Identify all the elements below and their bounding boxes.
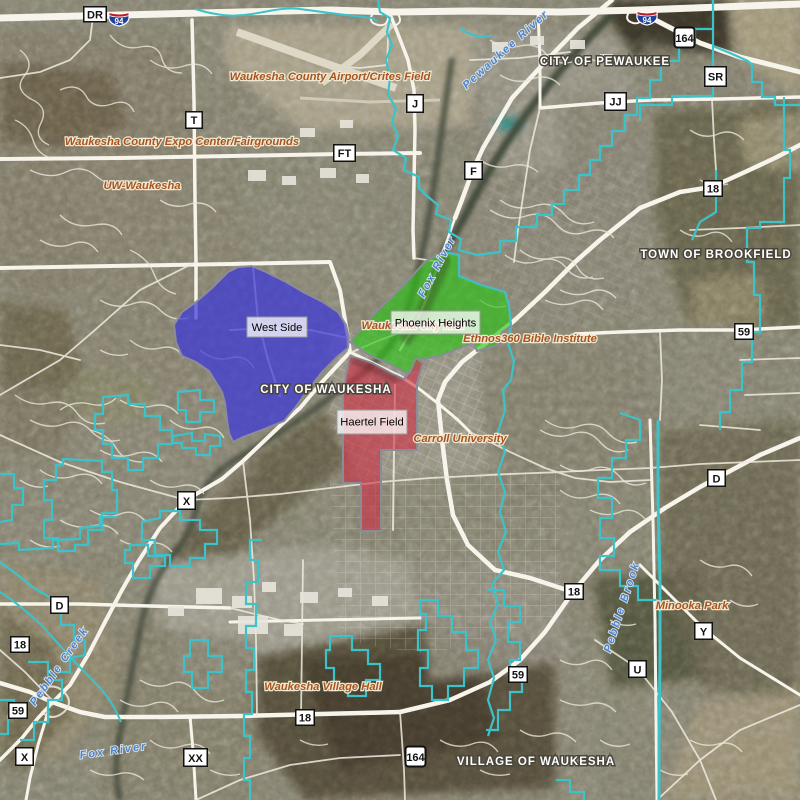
svg-text:18: 18 — [568, 587, 580, 599]
svg-text:59: 59 — [738, 327, 750, 339]
svg-text:Waukesha County Expo Center/Fa: Waukesha County Expo Center/Fairgrounds — [65, 136, 299, 148]
svg-text:Waukesha Village Hall: Waukesha Village Hall — [264, 681, 382, 693]
svg-text:Phoenix Heights: Phoenix Heights — [395, 318, 477, 330]
svg-text:18: 18 — [707, 184, 719, 196]
svg-text:18: 18 — [299, 713, 311, 725]
svg-text:DR: DR — [87, 9, 103, 21]
svg-text:59: 59 — [12, 706, 24, 718]
svg-text:Minooka Park: Minooka Park — [656, 600, 730, 612]
svg-text:Waukesha County Airport/Crites: Waukesha County Airport/Crites Field — [230, 71, 432, 83]
svg-text:TOWN OF BROOKFIELD: TOWN OF BROOKFIELD — [640, 249, 791, 261]
svg-text:T: T — [191, 115, 198, 127]
svg-text:18: 18 — [14, 640, 26, 652]
svg-text:Y: Y — [700, 627, 708, 639]
svg-text:F: F — [470, 166, 477, 178]
svg-text:West Side: West Side — [252, 322, 303, 334]
svg-text:94: 94 — [115, 17, 124, 26]
svg-text:U: U — [634, 665, 642, 677]
svg-text:164: 164 — [406, 752, 425, 764]
svg-text:JJ: JJ — [609, 97, 621, 109]
svg-text:X: X — [183, 496, 191, 508]
svg-text:SR: SR — [708, 72, 723, 84]
svg-text:X: X — [21, 752, 29, 764]
svg-text:FT: FT — [338, 148, 352, 160]
svg-text:VILLAGE OF WAUKESHA: VILLAGE OF WAUKESHA — [457, 756, 615, 768]
svg-text:D: D — [56, 601, 64, 613]
svg-text:XX: XX — [188, 753, 203, 765]
svg-text:D: D — [713, 474, 721, 486]
svg-text:J: J — [412, 99, 418, 111]
svg-text:Haertel Field: Haertel Field — [340, 417, 403, 429]
svg-text:UW-Waukesha: UW-Waukesha — [103, 180, 180, 192]
svg-text:CITY OF PEWAUKEE: CITY OF PEWAUKEE — [540, 56, 670, 68]
svg-text:Carroll University: Carroll University — [413, 433, 507, 445]
svg-text:59: 59 — [512, 670, 524, 682]
svg-text:CITY OF WAUKESHA: CITY OF WAUKESHA — [260, 384, 391, 396]
svg-text:Ethnos360 Bible Institute: Ethnos360 Bible Institute — [463, 333, 597, 345]
svg-text:164: 164 — [675, 33, 694, 45]
svg-text:94: 94 — [643, 16, 652, 25]
